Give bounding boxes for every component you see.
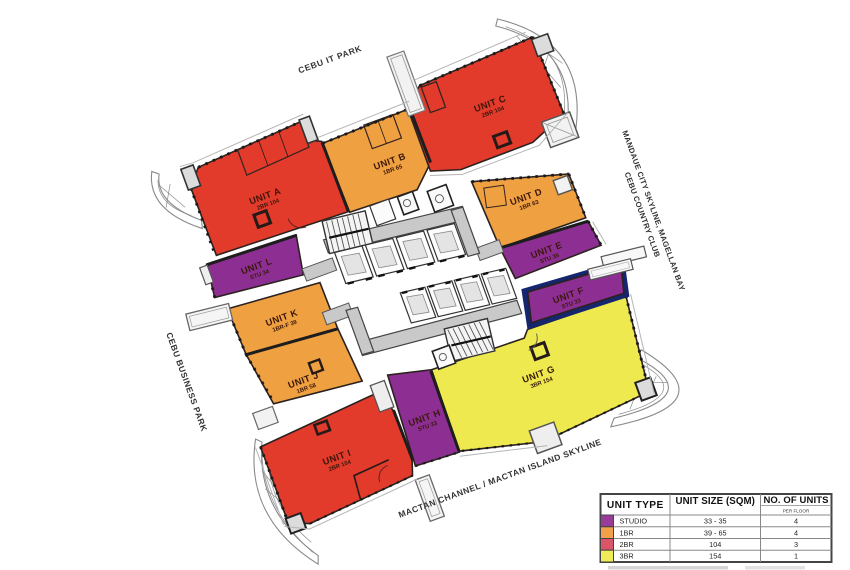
svg-text:4: 4 bbox=[794, 517, 798, 526]
svg-text:104: 104 bbox=[709, 540, 721, 549]
svg-text:UNIT SIZE (SQM): UNIT SIZE (SQM) bbox=[675, 496, 755, 507]
svg-text:CEBU BUSINESS PARK: CEBU BUSINESS PARK bbox=[164, 331, 209, 433]
svg-text:1: 1 bbox=[794, 552, 798, 561]
svg-text:1BR: 1BR bbox=[620, 528, 634, 537]
svg-text:2BR: 2BR bbox=[620, 540, 634, 549]
svg-text:UNIT TYPE: UNIT TYPE bbox=[607, 500, 664, 511]
svg-text:CEBU IT PARK: CEBU IT PARK bbox=[297, 43, 364, 75]
svg-text:4: 4 bbox=[794, 528, 798, 537]
svg-text:154: 154 bbox=[709, 552, 721, 561]
svg-text:3: 3 bbox=[794, 540, 798, 549]
svg-text:STUDIO: STUDIO bbox=[620, 517, 648, 526]
svg-text:3BR: 3BR bbox=[620, 552, 634, 561]
svg-text:33 - 35: 33 - 35 bbox=[704, 517, 727, 526]
svg-text:PER FLOOR: PER FLOOR bbox=[783, 509, 810, 514]
svg-text:NO. OF UNITS: NO. OF UNITS bbox=[763, 495, 828, 506]
svg-text:39 - 65: 39 - 65 bbox=[704, 528, 727, 537]
